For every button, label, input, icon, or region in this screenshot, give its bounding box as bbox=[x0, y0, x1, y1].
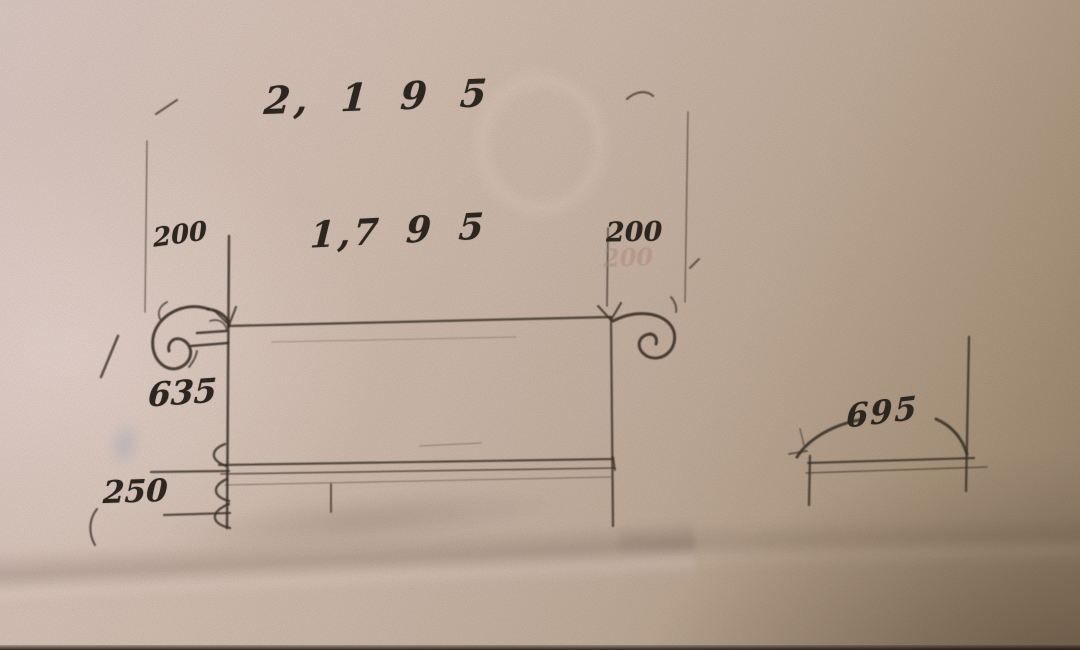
dimension-height: 635 bbox=[147, 373, 217, 411]
dimension-side-width: 695 bbox=[846, 391, 919, 432]
dimension-total-width: 2, 1 9 5 bbox=[263, 74, 492, 120]
dimension-left-offset: 200 bbox=[153, 218, 208, 252]
dimension-inner-width: 1,7 9 5 bbox=[309, 208, 487, 253]
paper-photo: 2, 1 9 5 1,7 9 5 200 200 200 635 250 695 bbox=[0, 0, 1080, 650]
dimension-labels: 2, 1 9 5 1,7 9 5 200 200 200 635 250 695 bbox=[0, 0, 1080, 650]
dimension-base-height: 250 bbox=[102, 476, 168, 509]
dimension-right-offset-erased: 200 bbox=[603, 245, 654, 271]
